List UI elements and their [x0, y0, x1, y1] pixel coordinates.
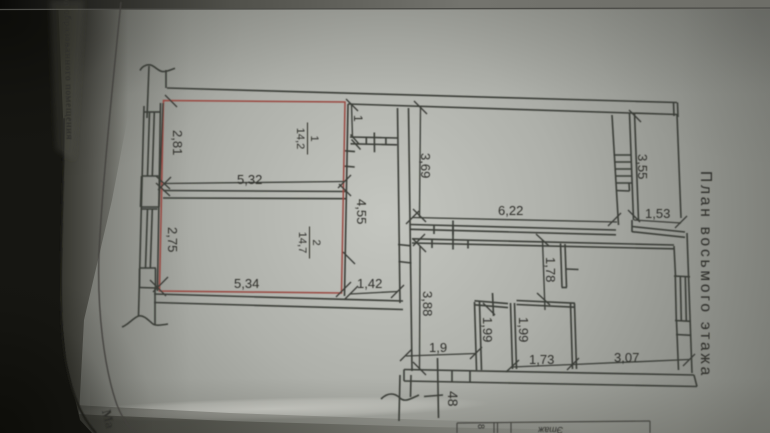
svg-text:2: 2: [310, 239, 322, 245]
svg-text:2,75: 2,75: [165, 227, 180, 252]
svg-text:5,34: 5,34: [234, 276, 259, 291]
svg-text:48: 48: [445, 391, 461, 407]
svg-text:3,55: 3,55: [635, 154, 650, 179]
svg-text:1,53: 1,53: [645, 206, 670, 221]
svg-text:1,42: 1,42: [357, 276, 382, 291]
svg-text:1,99: 1,99: [516, 317, 531, 342]
svg-text:2,81: 2,81: [170, 130, 185, 155]
svg-text:3,88: 3,88: [420, 291, 435, 316]
svg-text:14,2: 14,2: [294, 128, 306, 149]
svg-text:Этаж: Этаж: [537, 425, 563, 433]
svg-text:5,32: 5,32: [237, 172, 262, 187]
svg-text:1,99: 1,99: [480, 317, 495, 342]
svg-text:1,73: 1,73: [529, 352, 554, 367]
svg-text:3,07: 3,07: [614, 350, 639, 365]
svg-text:8: 8: [476, 424, 486, 429]
svg-text:План восьмого этажа: План восьмого этажа: [697, 171, 714, 378]
svg-text:1: 1: [351, 115, 365, 122]
svg-text:14,7: 14,7: [296, 232, 308, 253]
svg-text:3,69: 3,69: [418, 153, 433, 178]
svg-text:1: 1: [308, 135, 320, 141]
svg-text:1,9: 1,9: [429, 340, 447, 355]
svg-text:4,55: 4,55: [354, 199, 369, 224]
svg-text:1,78: 1,78: [543, 257, 558, 282]
svg-text:6,22: 6,22: [498, 203, 523, 218]
